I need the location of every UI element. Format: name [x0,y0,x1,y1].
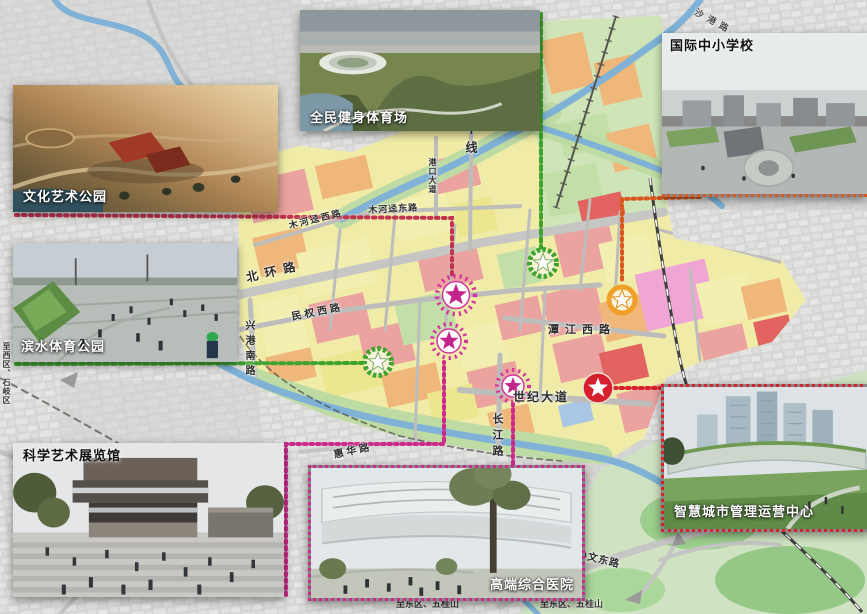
marker-green-node-north[interactable] [530,250,557,277]
road-label-changjiang: 长江路 [491,413,502,461]
inset-smart-city-center-label: 智慧城市管理运营中心 [674,505,814,519]
road-label-century-avenue: 世纪大道 [513,391,569,403]
inset-culture-park[interactable]: 文化艺术公园 [13,85,278,212]
marker-red-node[interactable] [583,373,613,403]
inset-exhibition-hall-label: 科学艺术展览馆 [23,449,121,463]
inset-waterfront-park[interactable]: 滨水体育公园 [13,243,237,362]
school-photo [662,33,867,194]
inset-exhibition-hall[interactable]: 科学艺术展览馆 [13,443,284,597]
road-label-gangkou-avenue: 港口大道 [428,158,436,194]
exhibition-hall-photo [13,443,284,597]
inset-hospital-label: 高端综合医院 [490,578,574,592]
inset-waterfront-park-label: 滨水体育公园 [21,340,105,354]
inset-stadium-label: 全民健身体育场 [310,111,408,125]
inset-stadium[interactable]: 全民健身体育场 [300,10,540,131]
road-label-tanjiang-west: 潭江西路 [548,325,616,336]
inset-hospital[interactable]: 高端综合医院 [308,465,585,601]
map-note-to-east-district-2: 至东区、五桂山 [540,600,603,609]
inset-culture-park-label: 文化艺术公园 [23,190,107,204]
planning-map-canvas: 北环路 木河迳西路 木河迳东路 民权西路 兴港南路 港口大道 中线 潭江西路 世… [0,0,867,614]
inset-school-label: 国际中小学校 [670,39,754,53]
marker-orange-node[interactable] [609,287,635,313]
map-note-to-east-district-1: 至东区、五桂山 [396,600,459,609]
inset-school[interactable]: 国际中小学校 [662,33,867,197]
inset-smart-city-center[interactable]: 智慧城市管理运营中心 [661,384,867,532]
road-label-xinggang-south: 兴港南路 [243,320,253,380]
map-note-to-west-district: 至西区、石岐区 [2,342,10,405]
marker-green-node-west[interactable] [365,349,392,376]
